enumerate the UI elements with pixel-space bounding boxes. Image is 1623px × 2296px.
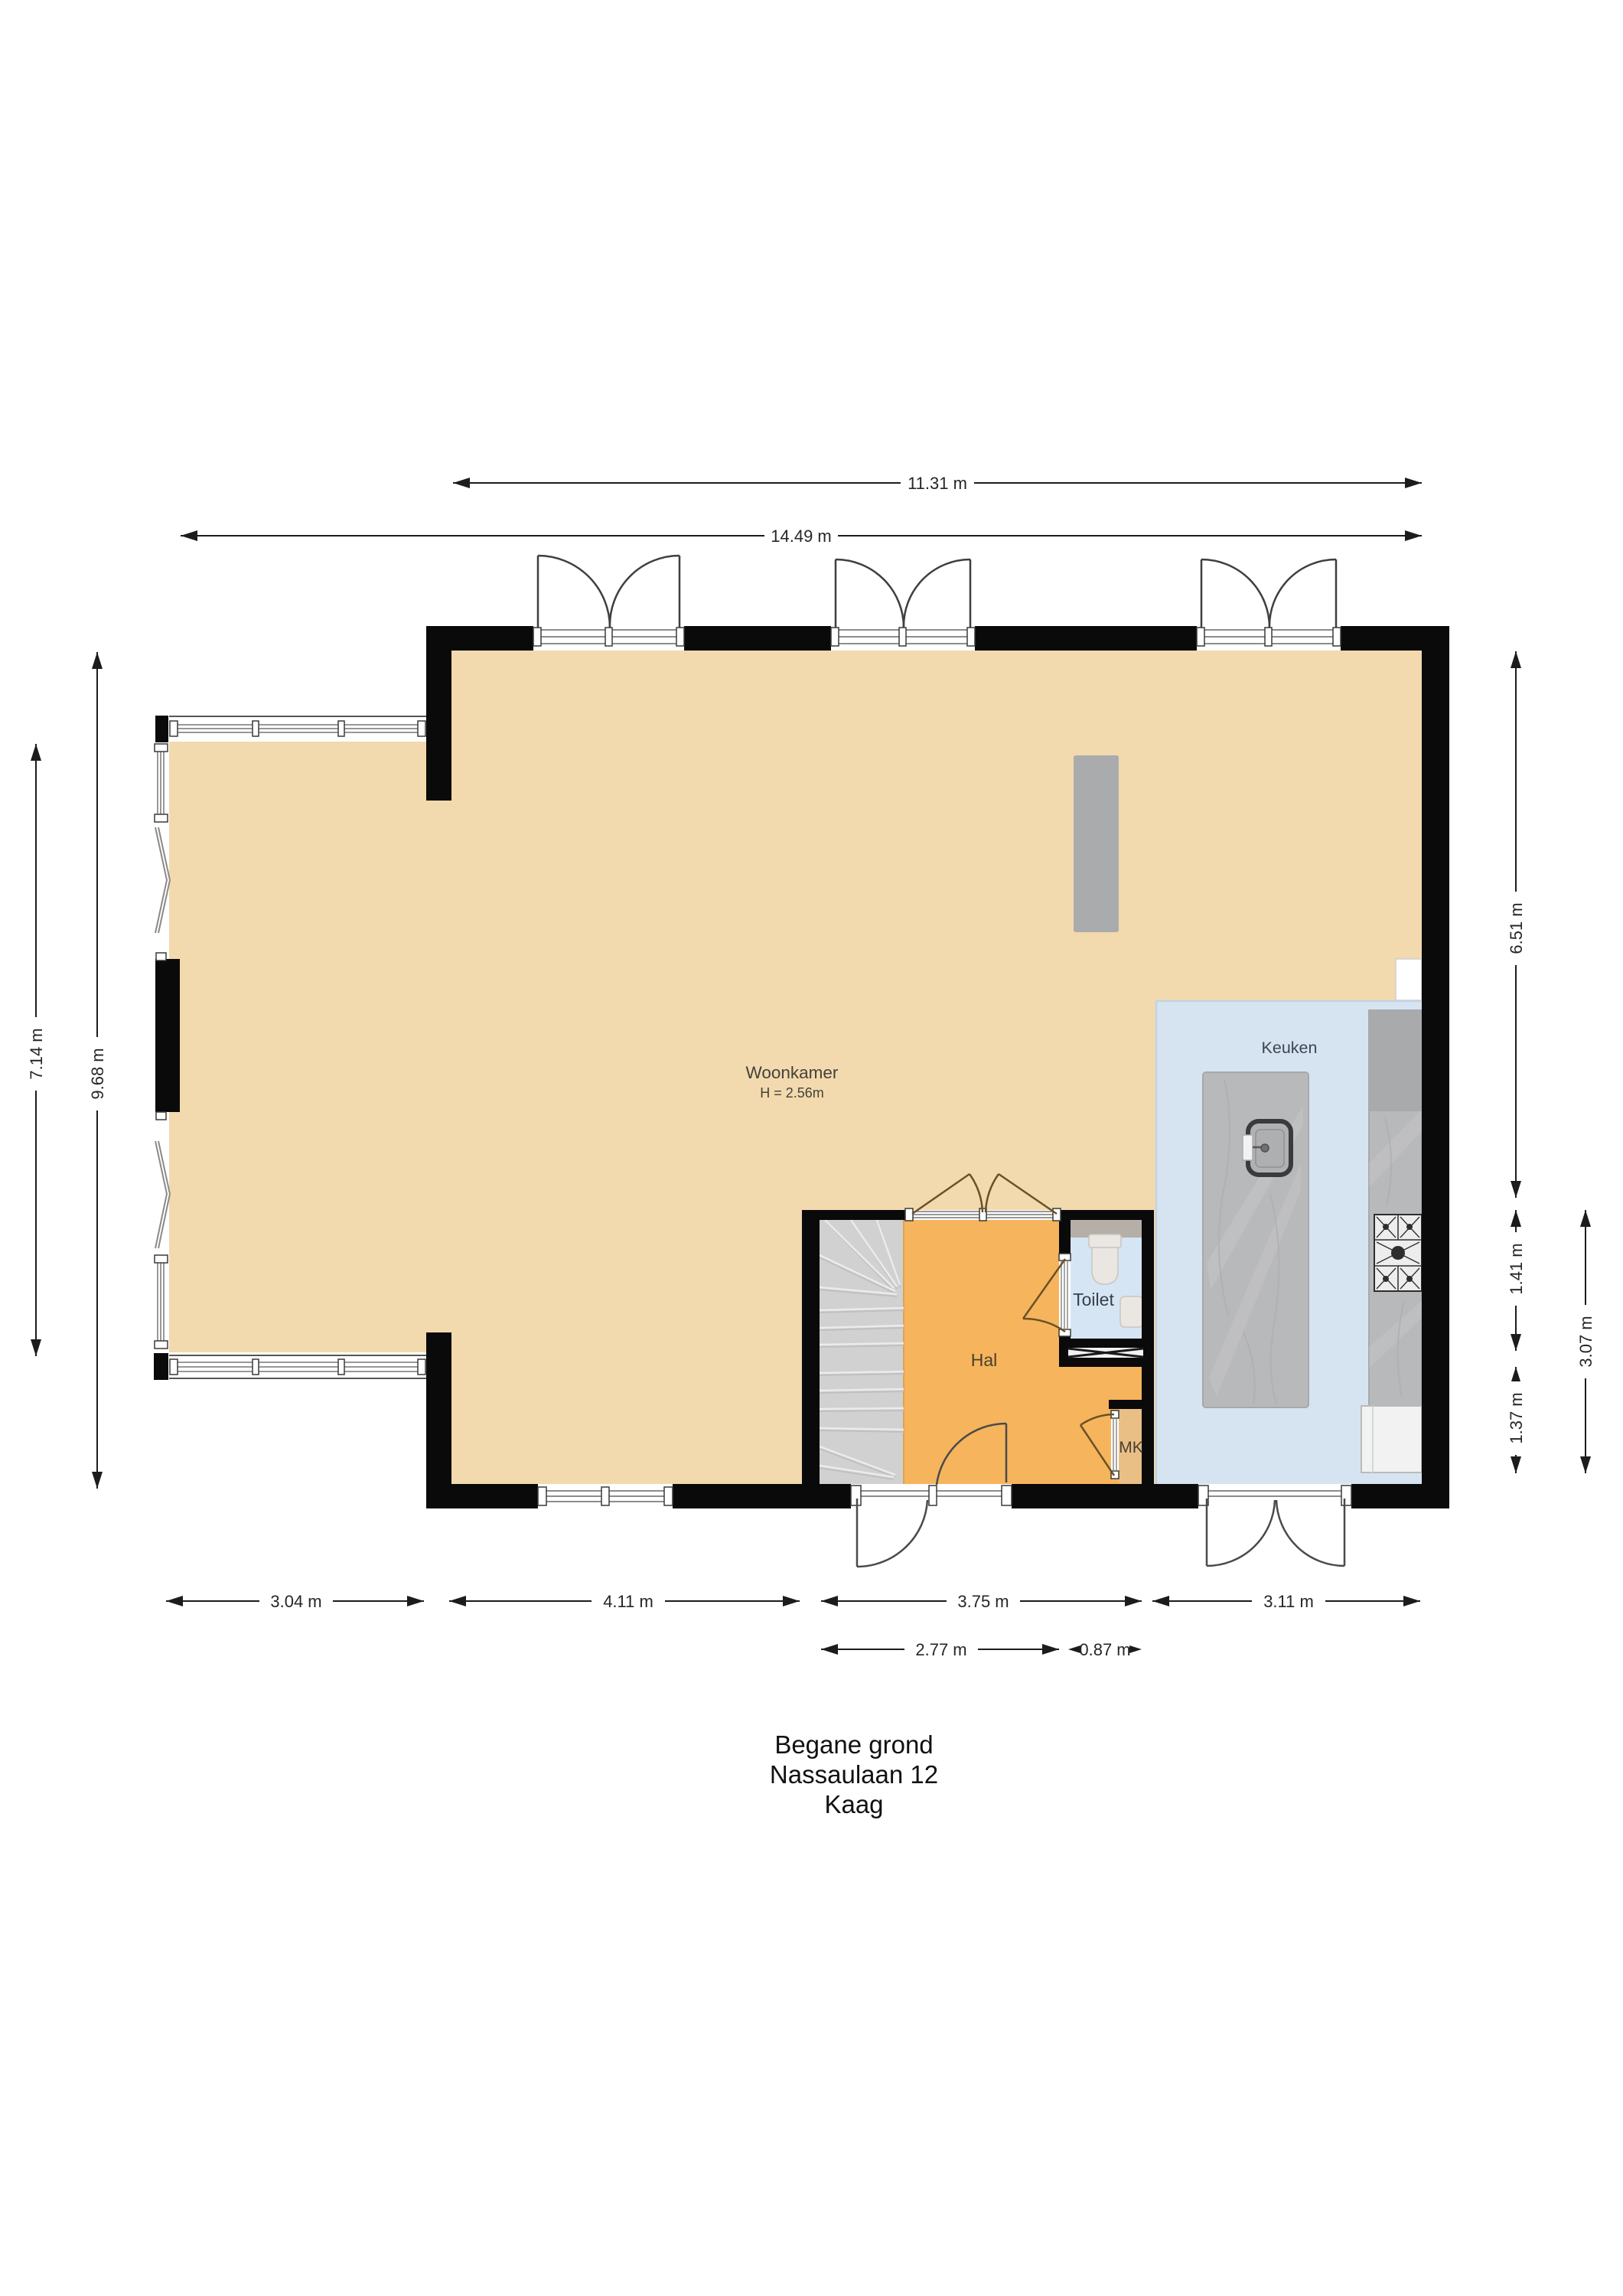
svg-text:3.11 m: 3.11 m (1263, 1592, 1314, 1611)
svg-text:14.49 m: 14.49 m (771, 527, 832, 546)
svg-text:2.77 m: 2.77 m (915, 1640, 966, 1659)
svg-text:7.14 m: 7.14 m (27, 1028, 46, 1079)
svg-text:Begane grond: Begane grond (774, 1730, 933, 1759)
svg-text:Nassaulaan 12: Nassaulaan 12 (770, 1760, 938, 1789)
svg-text:1.37 m: 1.37 m (1507, 1392, 1526, 1443)
svg-text:Hal: Hal (971, 1350, 998, 1370)
svg-text:4.11 m: 4.11 m (603, 1592, 653, 1611)
svg-text:3.75 m: 3.75 m (957, 1592, 1009, 1611)
svg-text:0.87 m: 0.87 m (1079, 1640, 1130, 1659)
svg-text:H = 2.56m: H = 2.56m (760, 1085, 824, 1101)
svg-text:MK: MK (1119, 1439, 1143, 1456)
svg-text:Kaag: Kaag (824, 1790, 883, 1818)
svg-text:Keuken: Keuken (1262, 1039, 1318, 1057)
svg-text:Woonkamer: Woonkamer (746, 1063, 839, 1082)
svg-text:Toilet: Toilet (1073, 1290, 1114, 1309)
svg-text:9.68 m: 9.68 m (88, 1048, 107, 1099)
svg-text:3.04 m: 3.04 m (270, 1592, 321, 1611)
svg-text:11.31 m: 11.31 m (908, 474, 967, 493)
svg-text:1.41 m: 1.41 m (1507, 1243, 1526, 1294)
svg-text:3.07 m: 3.07 m (1576, 1316, 1595, 1367)
svg-text:6.51 m: 6.51 m (1507, 902, 1526, 954)
